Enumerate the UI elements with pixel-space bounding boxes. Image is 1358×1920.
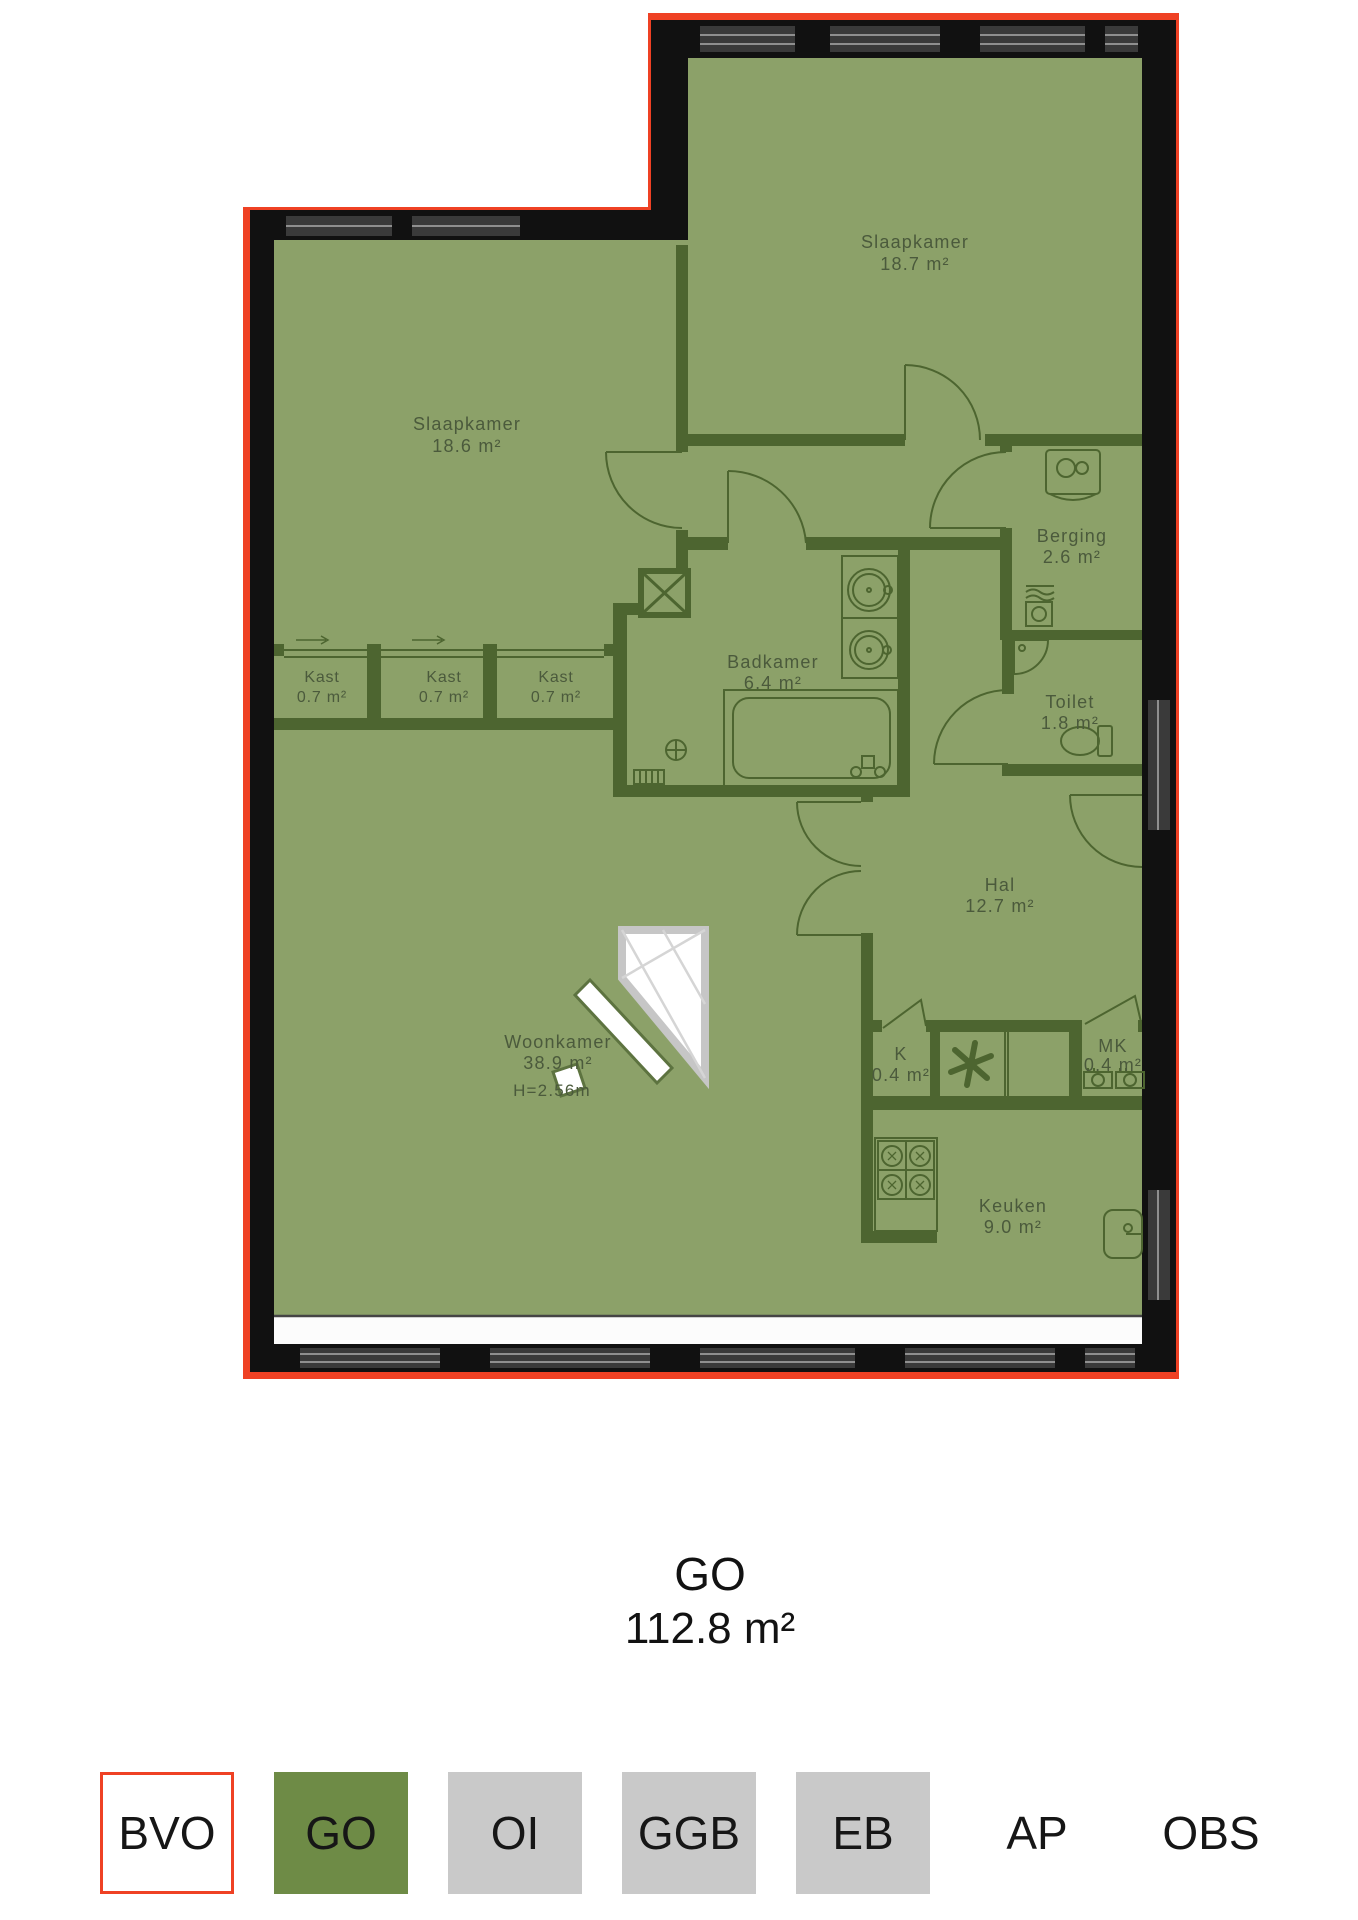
legend-label-go: GO	[305, 1806, 377, 1860]
legend-item-ap: AP	[970, 1772, 1104, 1894]
legend-item-ggb: GGB	[622, 1772, 756, 1894]
room-height-woonkamer: H=2.56m	[513, 1081, 591, 1100]
room-label-hal: Hal	[985, 875, 1016, 895]
room-label-woonkamer: Woonkamer	[504, 1032, 612, 1052]
plan-title-label: GO	[625, 1548, 795, 1601]
legend-item-eb: EB	[796, 1772, 930, 1894]
room-area-k: 0.4 m²	[872, 1065, 930, 1085]
room-label-kast-3: Kast	[538, 669, 573, 686]
shower-drain-icon	[666, 740, 686, 760]
room-label-kast-2: Kast	[426, 669, 461, 686]
room-label-mk: MK	[1098, 1036, 1127, 1056]
room-area-slaapkamer-right: 18.7 m²	[880, 254, 949, 274]
room-area-berging: 2.6 m²	[1043, 547, 1101, 567]
plan-title: GO 112.8 m²	[625, 1548, 795, 1656]
legend-label-eb: EB	[832, 1806, 893, 1860]
legend-label-oi: OI	[491, 1806, 540, 1860]
room-area-woonkamer: 38.9 m²	[523, 1053, 592, 1073]
bottom-strip	[274, 1316, 1142, 1344]
room-area-keuken: 9.0 m²	[984, 1217, 1042, 1237]
room-label-keuken: Keuken	[979, 1196, 1047, 1216]
room-area-kast-1: 0.7 m²	[297, 689, 347, 706]
room-label-k: K	[894, 1044, 907, 1064]
legend-item-go: GO	[274, 1772, 408, 1894]
room-area-hal: 12.7 m²	[965, 896, 1034, 916]
legend-item-oi: OI	[448, 1772, 582, 1894]
legend-item-bvo: BVO	[100, 1772, 234, 1894]
room-label-slaapkamer-right: Slaapkamer	[861, 232, 969, 252]
legend-label-obs: OBS	[1162, 1806, 1259, 1860]
room-area-kast-2: 0.7 m²	[419, 689, 469, 706]
room-area-toilet: 1.8 m²	[1041, 713, 1099, 733]
room-area-badkamer: 6.4 m²	[744, 673, 802, 693]
legend: BVO GO OI GGB EB AP OBS	[100, 1772, 1278, 1894]
shaft-icon	[641, 571, 688, 615]
legend-label-bvo: BVO	[118, 1806, 215, 1860]
room-label-badkamer: Badkamer	[727, 652, 819, 672]
room-area-slaapkamer-left: 18.6 m²	[432, 436, 501, 456]
room-label-toilet: Toilet	[1045, 692, 1094, 712]
plan-title-area: 112.8 m²	[625, 1601, 795, 1656]
room-label-kast-1: Kast	[304, 669, 339, 686]
room-area-mk: 0.4 m²	[1084, 1055, 1142, 1075]
legend-label-ap: AP	[1006, 1806, 1067, 1860]
legend-item-obs: OBS	[1144, 1772, 1278, 1894]
legend-label-ggb: GGB	[638, 1806, 740, 1860]
room-label-berging: Berging	[1037, 526, 1107, 546]
room-area-kast-3: 0.7 m²	[531, 689, 581, 706]
room-label-slaapkamer-left: Slaapkamer	[413, 414, 521, 434]
